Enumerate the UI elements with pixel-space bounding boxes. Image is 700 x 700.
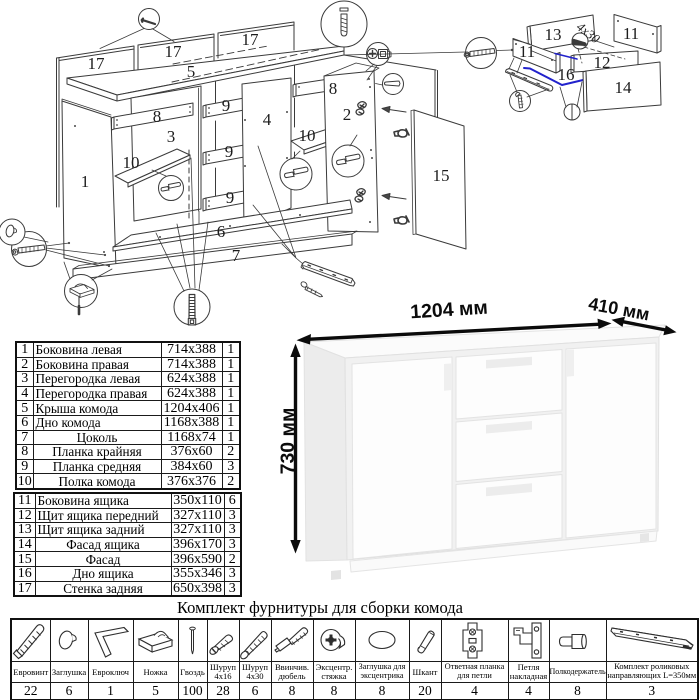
svg-text:17: 17 [165,42,183,61]
svg-text:1204 мм: 1204 мм [410,297,489,324]
svg-text:4: 4 [263,110,272,129]
svg-text:10: 10 [123,153,140,172]
svg-text:5: 5 [187,62,196,81]
svg-text:3: 3 [167,127,176,146]
svg-text:9: 9 [226,188,235,207]
svg-text:6: 6 [217,222,226,241]
svg-text:16: 16 [558,65,575,84]
svg-text:15: 15 [433,166,450,185]
svg-text:9: 9 [225,142,234,161]
svg-text:11: 11 [519,42,535,61]
svg-text:10: 10 [299,126,316,145]
svg-text:1: 1 [81,172,90,191]
svg-text:17: 17 [88,54,106,73]
svg-text:14: 14 [615,78,633,97]
svg-text:2: 2 [343,105,352,124]
svg-text:8: 8 [153,107,162,126]
svg-text:12: 12 [594,53,611,72]
svg-text:9: 9 [222,96,231,115]
svg-text:8: 8 [329,79,338,98]
svg-text:13: 13 [545,25,562,44]
svg-text:730 мм: 730 мм [277,408,299,475]
svg-text:17: 17 [242,30,260,49]
svg-text:11: 11 [623,24,639,43]
svg-text:7: 7 [232,246,241,265]
